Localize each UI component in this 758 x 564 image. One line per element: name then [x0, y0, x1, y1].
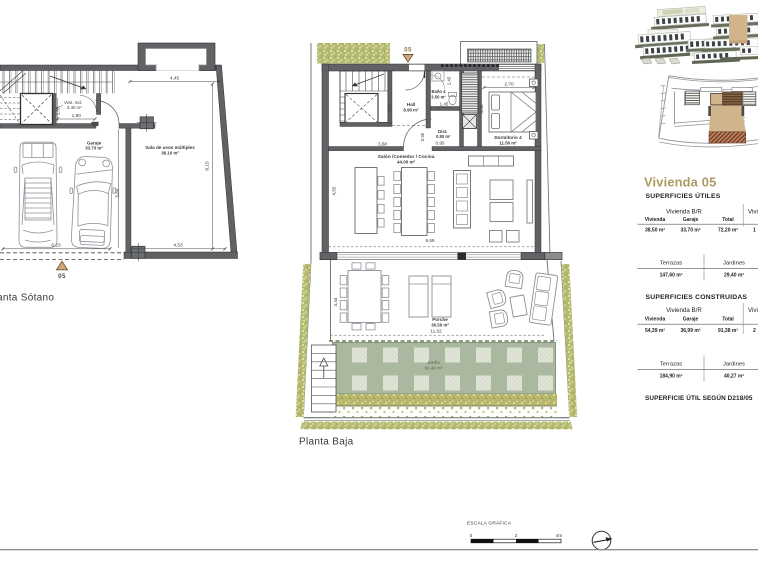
- svg-text:184,90 m²: 184,90 m²: [660, 374, 683, 380]
- svg-text:2.40 m²: 2.40 m²: [67, 105, 82, 110]
- svg-text:9,69: 9,69: [426, 238, 435, 243]
- svg-text:ESCALA GRÁFICA: ESCALA GRÁFICA: [467, 520, 512, 527]
- svg-text:33.70 m²: 33.70 m²: [85, 146, 103, 151]
- svg-text:36,99 m²: 36,99 m²: [680, 328, 700, 334]
- svg-text:Garaje: Garaje: [683, 217, 699, 223]
- svg-text:4,45: 4,45: [170, 75, 180, 81]
- svg-text:40,27 m²: 40,27 m²: [724, 374, 744, 380]
- svg-text:Terrazas: Terrazas: [660, 261, 682, 267]
- svg-text:0,90: 0,90: [420, 132, 425, 141]
- svg-text:SUPERFICIES CONSTRUIDAS: SUPERFICIES CONSTRUIDAS: [646, 294, 748, 301]
- svg-text:36.50 m²: 36.50 m²: [431, 322, 449, 327]
- svg-text:2: 2: [515, 533, 518, 538]
- svg-text:Planta Sótano: Planta Sótano: [0, 293, 54, 304]
- svg-text:3,44: 3,44: [333, 297, 338, 306]
- svg-text:Vivienda 05: Vivienda 05: [644, 175, 716, 190]
- svg-text:Vivienda: Vivienda: [645, 317, 666, 323]
- svg-text:2: 2: [753, 328, 756, 334]
- svg-text:36.10 m²: 36.10 m²: [161, 151, 179, 156]
- svg-text:0.80 m²: 0.80 m²: [436, 134, 451, 139]
- svg-text:8.90 m²: 8.90 m²: [403, 108, 419, 113]
- svg-text:29,40 m²: 29,40 m²: [724, 273, 744, 279]
- svg-text:05: 05: [404, 47, 412, 54]
- svg-text:Dormitorio 4: Dormitorio 4: [494, 135, 522, 140]
- svg-text:0,95: 0,95: [436, 141, 445, 146]
- svg-text:11.50 m²: 11.50 m²: [499, 141, 517, 146]
- svg-text:147,60 m²: 147,60 m²: [660, 273, 683, 279]
- svg-text:Vivienda: Vivienda: [645, 217, 666, 223]
- svg-text:3,45: 3,45: [479, 104, 484, 113]
- svg-text:05: 05: [58, 273, 66, 280]
- svg-text:2,45: 2,45: [447, 76, 452, 85]
- svg-text:Hall: Hall: [407, 102, 415, 107]
- svg-text:11,02: 11,02: [430, 328, 442, 333]
- svg-text:Sala de usos múltiples: Sala de usos múltiples: [145, 145, 195, 150]
- svg-text:1,35: 1,35: [56, 106, 61, 115]
- svg-text:3.50 m²: 3.50 m²: [431, 94, 446, 99]
- svg-text:3,55: 3,55: [387, 103, 392, 112]
- svg-text:Planta Baja: Planta Baja: [299, 436, 354, 447]
- svg-text:Total: Total: [722, 317, 734, 323]
- svg-text:Baño 4: Baño 4: [432, 89, 447, 94]
- svg-text:Vivi: Vivi: [748, 209, 758, 216]
- svg-text:Terrazas: Terrazas: [660, 362, 682, 368]
- svg-text:Porche: Porche: [432, 317, 448, 322]
- svg-text:8,15: 8,15: [205, 161, 211, 171]
- svg-text:SUPERFICIE ÚTIL SEGÚN D218/05: SUPERFICIE ÚTIL SEGÚN D218/05: [645, 393, 753, 402]
- svg-text:72,20 m²: 72,20 m²: [718, 228, 738, 234]
- svg-text:Total: Total: [722, 217, 734, 223]
- svg-text:Jardín: Jardín: [427, 360, 440, 365]
- svg-text:81.40 m²: 81.40 m²: [425, 366, 443, 371]
- svg-text:91,38 m²: 91,38 m²: [718, 328, 738, 334]
- svg-text:4,53: 4,53: [173, 243, 183, 249]
- svg-text:Vivienda B/R: Vivienda B/R: [666, 307, 702, 314]
- svg-text:54,39 m²: 54,39 m²: [645, 328, 665, 334]
- svg-text:1,80: 1,80: [72, 113, 82, 119]
- svg-text:Vivienda B/R: Vivienda B/R: [666, 209, 702, 216]
- svg-text:Jardines: Jardines: [723, 261, 745, 267]
- svg-text:4,55: 4,55: [332, 186, 337, 195]
- svg-text:44.00 m²: 44.00 m²: [397, 159, 416, 164]
- svg-text:Vivi: Vivi: [748, 307, 758, 314]
- svg-text:0: 0: [470, 533, 473, 538]
- svg-text:2,70: 2,70: [504, 81, 514, 87]
- svg-text:4m: 4m: [556, 533, 563, 538]
- svg-text:38,50 m²: 38,50 m²: [645, 228, 665, 234]
- svg-text:SUPERFICIES ÚTILES: SUPERFICIES ÚTILES: [646, 191, 721, 200]
- svg-text:33,70 m²: 33,70 m²: [680, 228, 700, 234]
- svg-text:1: 1: [753, 228, 756, 234]
- svg-text:Jardines: Jardines: [723, 362, 745, 368]
- svg-text:3,68: 3,68: [378, 141, 387, 146]
- svg-text:Garaje: Garaje: [683, 317, 699, 323]
- svg-text:1,45: 1,45: [440, 102, 449, 107]
